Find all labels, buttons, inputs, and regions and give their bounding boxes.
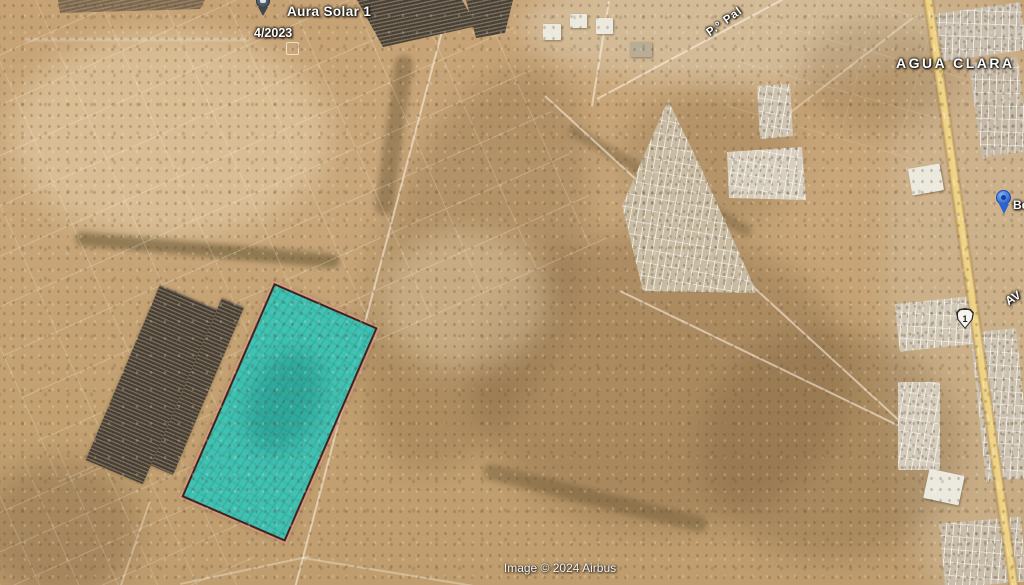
housing-grid-block [0, 0, 1024, 585]
blue-pin-tail [999, 204, 1009, 214]
dirt-road [303, 557, 473, 585]
road-label-avenida-partial: AV [1002, 288, 1023, 308]
dirt-road [25, 38, 250, 41]
site-pin-icon[interactable] [255, 0, 271, 20]
arroyo-wash [75, 231, 340, 268]
terrain-scrub-patch [315, 39, 635, 500]
site-pin-glyph [260, 0, 266, 3]
warehouse-building [543, 24, 561, 40]
dirt-road [597, 0, 796, 100]
dirt-road [294, 1, 451, 585]
terrain-scrub-patch [0, 460, 140, 585]
warehouse-building [923, 469, 964, 506]
terrain-speckle-texture [0, 0, 1024, 585]
housing-grid-block [932, 2, 1024, 62]
dirt-road [180, 555, 312, 585]
small-plot-outline [286, 42, 299, 55]
dirt-road [591, 1, 610, 107]
satellite-map-canvas[interactable]: 1 Aura Solar 1 4/2023 AGUA CLARA P.º Pal… [0, 0, 1024, 585]
arroyo-wash [481, 462, 708, 533]
imagery-attribution: Image © 2024 Airbus [504, 561, 616, 575]
site-pin-label[interactable]: Aura Solar 1 [287, 4, 371, 19]
blue-pin-dot [1001, 195, 1006, 200]
imagery-date-label: 4/2023 [254, 26, 292, 40]
locality-label-agua-clara[interactable]: AGUA CLARA [896, 55, 1015, 71]
warehouse-building [908, 163, 944, 195]
site-pin-tail [258, 7, 268, 16]
warehouse-building [630, 42, 652, 57]
terrain-light-patch [10, 30, 330, 240]
solar-panel-array [0, 0, 1024, 585]
solar-panel-array [0, 0, 1024, 585]
warehouse-building [596, 18, 613, 34]
housing-grid-triangle [0, 0, 1024, 585]
parcel-inner-shade [231, 340, 337, 464]
terrain-light-patch [380, 230, 550, 370]
blue-place-pin-icon[interactable] [996, 190, 1012, 216]
poi-label-partial[interactable]: Bo [1013, 198, 1024, 212]
dirt-road [620, 290, 912, 432]
housing-grid-block [969, 57, 1024, 158]
warehouse-building [570, 14, 587, 28]
dirt-road [120, 501, 151, 585]
solar-panel-array [0, 0, 1024, 585]
housing-grid-block [898, 382, 940, 470]
housing-grid-block [0, 0, 1024, 585]
arroyo-wash [374, 55, 414, 216]
